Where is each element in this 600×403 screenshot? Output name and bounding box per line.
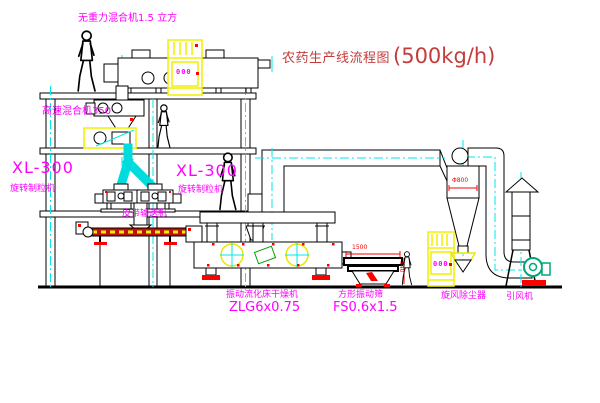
fan-label: 引风机 [506, 293, 533, 303]
dryer-exhaust-header [200, 212, 335, 223]
granulator-right-model-label: XL-300 [176, 162, 238, 180]
title-text: 农药生产线流程图 [282, 47, 390, 66]
title-capacity: (500kg/h) [393, 44, 495, 68]
cabinet2-display: 000 [433, 260, 449, 268]
dryer-model-label: ZLG6x0.75 [229, 301, 300, 315]
sieve-height-dim: 540 [398, 261, 404, 272]
gravity-mixer-label: 无重力混合机1.5 立方 [78, 13, 177, 24]
cyclone-inlet-reducer [440, 150, 447, 181]
high-speed-mixer-label: 高速混合机350 [42, 106, 111, 117]
sieve-length-dim: 1500 [352, 245, 367, 251]
cabinet1-display: 000 [176, 68, 192, 76]
belt-conveyor [76, 222, 197, 286]
cyclone-separator [447, 148, 479, 272]
control-cabinet-2 [428, 232, 454, 286]
person-figure [158, 105, 170, 147]
granulator-right-name-label: 旋转制粒机 [178, 186, 223, 196]
granulator-left-name-label: 旋转制粒机 [10, 185, 55, 195]
belt-conveyor-label: 皮带输送机 [122, 210, 167, 220]
exhaust-duct [262, 150, 440, 212]
sieve-model-label: FS0.6x1.5 [333, 301, 398, 315]
square-sieve [344, 251, 404, 287]
process-flow-diagram: 农药生产线流程图 (500kg/h) 无重力混合机1.5 立方 高速混合机350… [0, 0, 600, 403]
induced-draft-fan [522, 258, 550, 286]
person-figure [78, 31, 95, 91]
cyclone-label: 旋风除尘器 [441, 292, 486, 302]
granulator-left-model-label: XL-300 [12, 159, 74, 177]
cyclone-diameter-dim: Φ800 [452, 178, 468, 184]
page-title: 农药生产线流程图 (500kg/h) [282, 44, 495, 68]
fluid-bed-dryer [186, 212, 351, 280]
